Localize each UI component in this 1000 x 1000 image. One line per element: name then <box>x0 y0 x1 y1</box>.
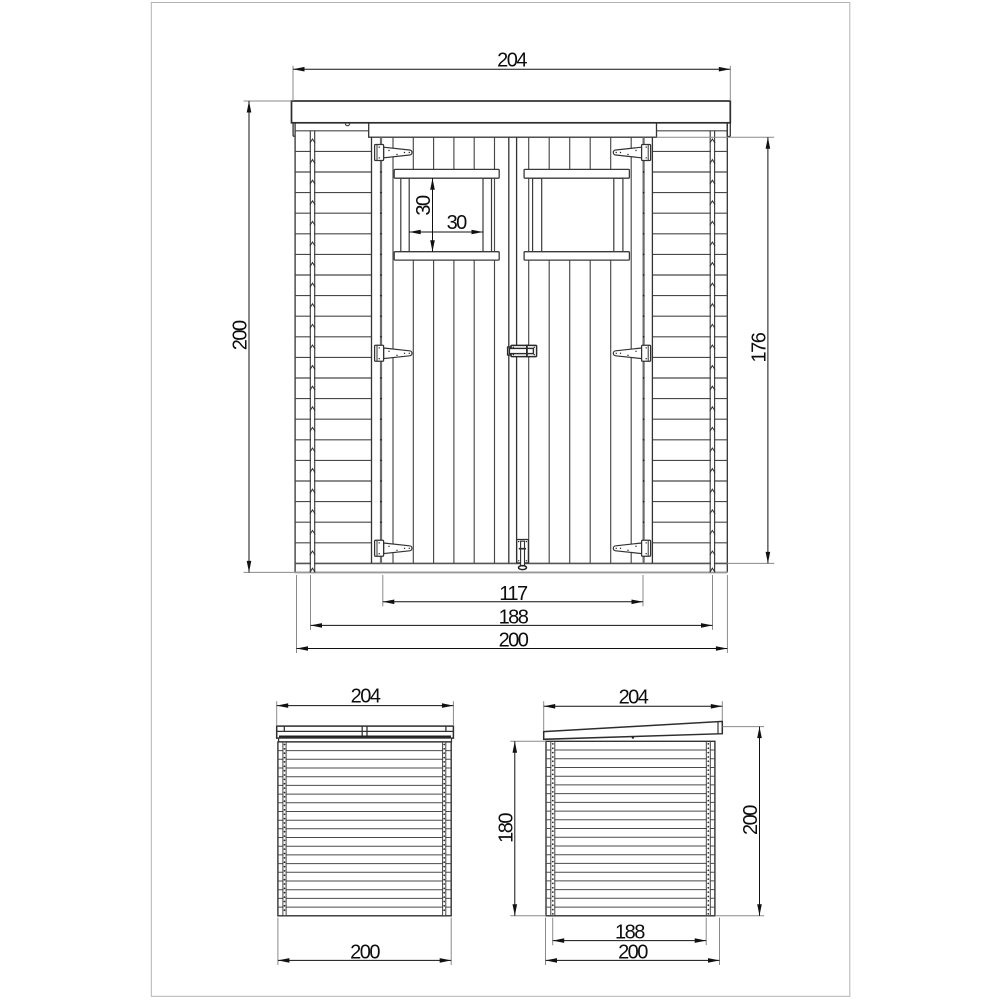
svg-text:180: 180 <box>495 813 517 843</box>
svg-text:204: 204 <box>619 686 649 708</box>
svg-text:117: 117 <box>499 583 528 605</box>
svg-text:200: 200 <box>618 941 648 963</box>
svg-text:30: 30 <box>413 195 435 216</box>
svg-text:176: 176 <box>748 332 770 362</box>
svg-text:188: 188 <box>499 606 529 628</box>
svg-text:200: 200 <box>350 941 380 963</box>
svg-text:200: 200 <box>230 320 252 350</box>
svg-text:188: 188 <box>615 922 645 944</box>
svg-text:204: 204 <box>497 49 527 71</box>
svg-text:204: 204 <box>351 686 381 708</box>
svg-text:200: 200 <box>499 630 529 652</box>
svg-text:200: 200 <box>740 805 762 835</box>
svg-text:30: 30 <box>447 212 468 234</box>
